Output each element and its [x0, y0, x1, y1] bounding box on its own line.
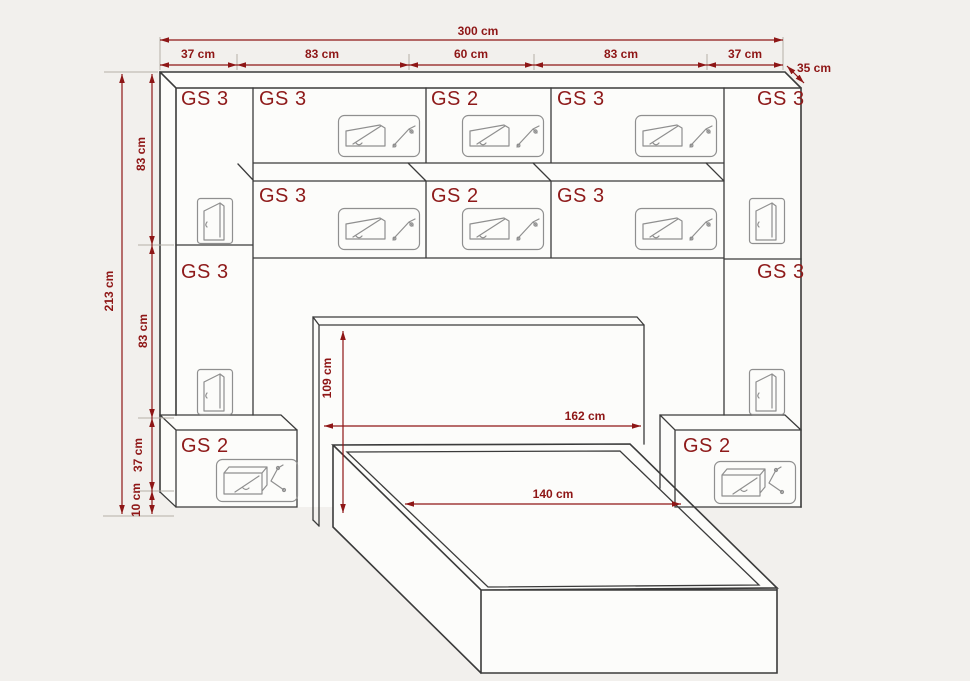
dim-segment: 83 cm — [134, 137, 148, 171]
cabinet-label: GS 3 — [757, 88, 805, 110]
cabinet-label: GS 2 — [431, 185, 479, 207]
dim-segment: 10 cm — [129, 483, 143, 517]
cabinet-label: GS 3 — [259, 185, 307, 207]
dim-headboard-width: 162 cm — [565, 409, 606, 423]
dim-total-width: 300 cm — [458, 24, 499, 38]
dim-segment: 60 cm — [454, 47, 488, 61]
cabinet-label: GS 3 — [557, 185, 605, 207]
dim-segment: 83 cm — [305, 47, 339, 61]
dim-bed-width: 140 cm — [533, 487, 574, 501]
cabinet-label: GS 3 — [181, 88, 229, 110]
bed-front-face — [481, 590, 777, 673]
cabinet-label: GS 3 — [557, 88, 605, 110]
dim-segment: 37 cm — [181, 47, 215, 61]
cabinet-label: GS 2 — [431, 88, 479, 110]
dim-depth: 35 cm — [797, 61, 831, 75]
drawing-faces — [160, 72, 801, 673]
cabinet-label: GS 3 — [757, 261, 805, 283]
dim-segment: 83 cm — [604, 47, 638, 61]
dim-headboard-height: 109 cm — [320, 358, 334, 399]
dim-segment: 83 cm — [136, 314, 150, 348]
furniture-dimension-diagram: 300 cm 37 cm 83 cm 60 cm 83 cm 37 cm 35 … — [0, 0, 970, 681]
cabinet-label: GS 3 — [259, 88, 307, 110]
dim-segment: 37 cm — [131, 438, 145, 472]
cabinet-label: GS 2 — [683, 435, 731, 457]
headboard-face — [313, 317, 644, 444]
cabinet-label: GS 2 — [181, 435, 229, 457]
cabinet-label: GS 3 — [181, 261, 229, 283]
dim-total-height: 213 cm — [102, 271, 116, 312]
dim-segment: 37 cm — [728, 47, 762, 61]
